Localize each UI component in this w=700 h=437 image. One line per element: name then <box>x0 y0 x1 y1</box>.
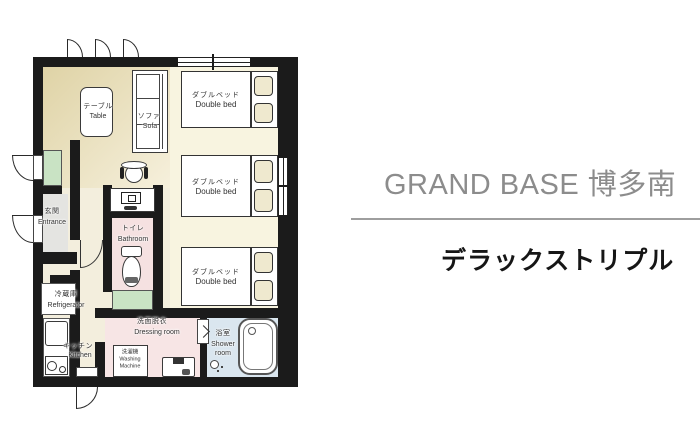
door-arc-top-3 <box>123 39 139 57</box>
brand-title: GRAND BASE 博多南 <box>384 161 676 203</box>
door-left-upper-leaf <box>33 155 43 180</box>
desk-chair-arm-right <box>144 167 148 179</box>
sofa-inner-frame <box>136 74 160 149</box>
desk-chair-arm-left <box>120 167 124 179</box>
shoe-cabinet <box>43 150 62 186</box>
bed-3-pillow-1 <box>254 252 273 273</box>
bed-2-label: ダブルベッド Double bed <box>182 156 250 216</box>
stove-burner-small <box>59 366 66 373</box>
stove-burner-large <box>47 361 57 371</box>
refrigerator-label-en: Refrigerator <box>48 302 85 310</box>
wall-shoebox-divider <box>43 186 62 194</box>
door-arc-left-lower <box>12 215 33 243</box>
folding-door-shower <box>197 319 209 344</box>
door-arc-top-2 <box>95 39 111 57</box>
sofa-backrest-line <box>162 74 163 149</box>
washing-machine-label-jp: 洗濯機 <box>122 349 139 355</box>
entrance-label-en: Entrance <box>38 219 66 227</box>
window-top <box>178 57 250 67</box>
bed-3-headboard-line <box>250 248 252 305</box>
bed-2-label-jp: ダブルベッド <box>192 177 240 187</box>
table-label-jp: テーブル <box>83 103 113 111</box>
sofa <box>132 70 168 153</box>
room-type-title: デラックストリプル <box>441 241 674 277</box>
bed-2-pillow-2 <box>254 189 273 212</box>
table-label-en: Table <box>90 113 107 121</box>
shower-label-en1: Shower <box>211 341 235 348</box>
sofa-cushion-line-1 <box>136 98 160 99</box>
bed-3: ダブルベッド Double bed <box>181 247 278 306</box>
shower-label-en: Shower room <box>211 340 235 358</box>
washbasin-drain <box>182 369 190 375</box>
toilet-label-jp: トイレ <box>122 225 145 233</box>
desk <box>110 188 155 212</box>
door-arc-bottom <box>76 387 98 409</box>
bed-3-pillow-2 <box>254 280 273 301</box>
bed-1: ダブルベッド Double bed <box>181 71 278 128</box>
kitchen-label-en: Kitchen <box>68 352 91 360</box>
wall-fridge-stub <box>50 275 77 283</box>
sofa-label-jp: ソファ <box>138 113 161 121</box>
washbasin-faucet <box>173 358 184 364</box>
bed-1-label-en: Double bed <box>196 100 237 109</box>
bed-1-headboard-line <box>250 72 252 127</box>
washing-machine-label-en2: Machine <box>120 364 141 370</box>
shower-dot-2 <box>217 370 219 372</box>
title-divider <box>351 218 700 220</box>
bathtub <box>238 318 278 375</box>
window-top-mullion <box>212 54 214 70</box>
closet <box>112 290 153 310</box>
washing-machine-label-en1: Washing <box>119 356 140 362</box>
wall-entrance-right-upper <box>70 140 80 240</box>
toilet-label-en: Bathroom <box>118 236 148 244</box>
bed-3-label-en: Double bed <box>196 277 237 286</box>
dressing-label-jp: 洗面脱衣 <box>137 318 167 326</box>
bed-2: ダブルベッド Double bed <box>181 155 278 217</box>
door-arc-top-1 <box>67 39 83 57</box>
door-bottom-leaf <box>76 367 98 377</box>
kitchen-label-jp: キッチン <box>63 343 93 351</box>
bed-1-label-jp: ダブルベッド <box>192 90 240 100</box>
folding-door-chevron <box>197 325 210 338</box>
shower-label-en2: room <box>215 350 231 357</box>
window-top-centerline <box>178 62 250 63</box>
door-arc-left-upper <box>12 155 33 181</box>
bed-1-label: ダブルベッド Double bed <box>182 72 250 127</box>
wall-entrance-bottom <box>43 252 77 264</box>
bed-2-headboard-line <box>250 156 252 216</box>
sofa-label-en: Sofa <box>143 123 157 131</box>
washing-machine-label: 洗濯機 Washing Machine <box>119 349 140 370</box>
floor-plan: ダブルベッド Double bed ダブルベッド Double bed ダブルベ… <box>33 57 298 387</box>
shower-faucet <box>210 360 219 369</box>
entrance-label-jp: 玄関 <box>45 208 60 216</box>
bed-3-label-jp: ダブルベッド <box>192 267 240 277</box>
refrigerator-label-jp: 冷蔵庫 <box>55 291 78 299</box>
bed-3-label: ダブルベッド Double bed <box>182 248 250 305</box>
laptop-icon <box>121 192 141 204</box>
desk-tray <box>124 206 137 210</box>
shower-label-jp: 浴室 <box>216 330 231 338</box>
shower-dot-1 <box>221 366 223 368</box>
bed-2-label-en: Double bed <box>196 187 237 196</box>
dressing-label-en: Dressing room <box>134 329 180 337</box>
bed-1-pillow-2 <box>254 103 273 123</box>
bathtub-drain <box>248 327 256 335</box>
toilet-seat-band <box>125 277 138 283</box>
bed-1-pillow-1 <box>254 76 273 96</box>
bed-2-pillow-1 <box>254 160 273 183</box>
